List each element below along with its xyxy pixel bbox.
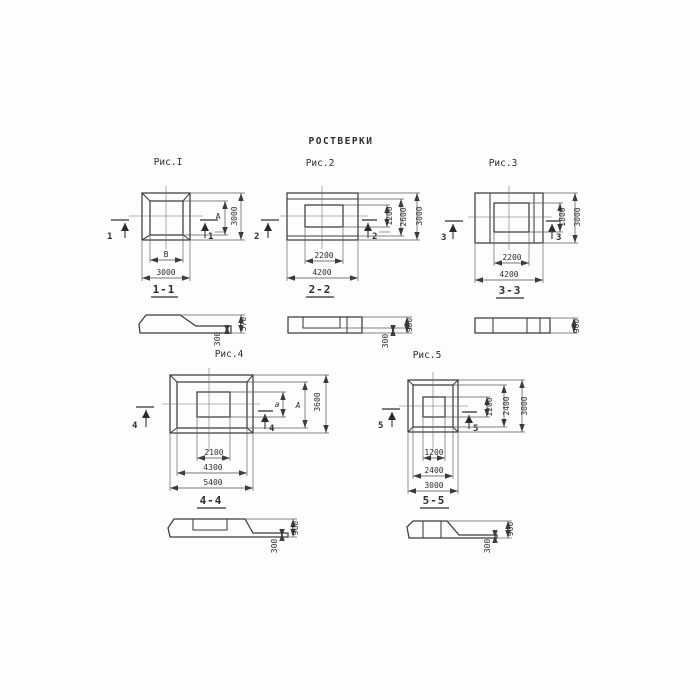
fig2-outline: [287, 193, 358, 240]
fig2-section-view: 900 300: [288, 317, 414, 348]
fig3-dim-bottom-inner: 2200: [502, 253, 521, 262]
fig3-dim-right-inner: 1800: [558, 207, 567, 226]
fig2-dim-right-inner: 1200: [385, 206, 394, 225]
fig5-cut-marker-left: 5: [378, 409, 400, 431]
fig3-section-label: 3-3: [499, 284, 522, 297]
fig3-section-view: 900: [475, 318, 581, 333]
fig1-plan: Рис.I 1 1 А: [107, 157, 245, 297]
fig1-dimensions: А 3000 В 3000: [142, 193, 245, 281]
fig4-cut-marker-left: 4: [132, 407, 154, 431]
drawing-sheet: РОСТВЕРКИ Рис.I 1 1: [0, 0, 700, 700]
fig4-plan: Рис.4 4 4 a: [132, 349, 329, 508]
fig4-dim-right-mid: А: [295, 401, 301, 410]
fig4-dim-bottom-mid: 4300: [203, 463, 222, 472]
fig1-section-view: 570 300: [139, 315, 248, 346]
fig3-dim-right-outer: 3000: [573, 207, 582, 226]
fig2-dim-right-mid: 2600: [399, 207, 408, 226]
fig2-section-tail: 300: [381, 334, 390, 349]
fig1-dim-bottom-outer: 3000: [156, 268, 175, 277]
fig2-section-height: 900: [405, 318, 414, 333]
fig3-cut-marker-left: 3: [441, 221, 463, 243]
fig1-dim-bottom-inner: В: [164, 250, 169, 259]
fig1-caption: Рис.I: [154, 157, 183, 168]
fig4-dim-right-inner: a: [275, 400, 280, 409]
fig4-caption: Рис.4: [215, 349, 244, 360]
fig3-cut-number: 3: [441, 233, 446, 243]
fig1-centerlines: [129, 186, 203, 249]
fig5-dim-right-outer: 3000: [520, 396, 529, 415]
fig5-section-label: 5-5: [423, 494, 446, 507]
fig4-dim-bottom-inner: 2100: [204, 448, 223, 457]
fig4-dim-bottom-outer: 5400: [203, 478, 222, 487]
fig1-cut-number: 1: [107, 232, 112, 242]
fig3-plan: Рис.3 3 3 1800 3000: [441, 158, 582, 298]
grillage-drawing: РОСТВЕРКИ Рис.I 1 1: [0, 0, 700, 700]
fig2-dim-right-outer: 3000: [415, 206, 424, 225]
fig4-cut-number: 4: [269, 424, 275, 434]
fig1-cut-marker-right: 1: [200, 220, 226, 242]
fig2-cut-number: 2: [372, 232, 377, 242]
fig2-plan: Рис.2 2 2 1200: [254, 158, 424, 297]
fig5-caption: Рис.5: [413, 350, 442, 361]
fig1-cut-marker-left: 1: [107, 220, 129, 242]
fig5-section-tail: 300: [483, 539, 492, 554]
fig1-dim-right-outer: 3000: [230, 206, 239, 225]
fig2-caption: Рис.2: [306, 158, 335, 169]
fig2-section-label: 2-2: [309, 283, 332, 296]
fig4-section-tail: 300: [270, 539, 279, 554]
fig1-section-tail: 300: [213, 332, 222, 347]
fig2-dim-bottom-inner: 2200: [314, 251, 333, 260]
fig4-section-height: 900: [291, 521, 300, 536]
fig4-dim-right-outer: 3600: [313, 392, 322, 411]
fig5-section-height: 900: [506, 522, 515, 537]
sheet-title: РОСТВЕРКИ: [309, 136, 374, 147]
fig5-cut-marker-right: 5: [462, 412, 478, 434]
fig5-cut-number: 5: [378, 421, 383, 431]
fig1-section-label: 1-1: [153, 283, 176, 296]
fig2-cut-number: 2: [254, 232, 259, 242]
fig5-dim-right-mid: 2400: [502, 396, 511, 415]
fig2-dim-bottom-outer: 4200: [312, 268, 331, 277]
fig1-cut-number: 1: [208, 232, 213, 242]
fig5-cut-number: 5: [473, 424, 478, 434]
fig3-dim-bottom-outer: 4200: [499, 270, 518, 279]
fig5-section-view: 900 300: [407, 521, 515, 553]
fig2-cut-marker-left: 2: [254, 220, 279, 242]
fig5-plan: Рис.5 5 5 1200: [378, 350, 529, 508]
fig5-dim-bottom-outer: 3000: [424, 481, 443, 490]
fig4-section-view: 900 300: [168, 519, 300, 553]
fig3-cut-number: 3: [556, 233, 561, 243]
fig1-section-height: 570: [239, 317, 248, 332]
fig4-cut-number: 4: [132, 421, 138, 431]
fig5-dim-bottom-mid: 2400: [424, 466, 443, 475]
fig3-centerlines: [468, 186, 552, 250]
fig4-section-label: 4-4: [200, 494, 223, 507]
fig4-cut-marker-right: 4: [258, 411, 275, 434]
fig1-dim-right-inner: А: [216, 212, 221, 221]
fig5-dim-right-inner: 1200: [485, 397, 494, 416]
fig3-section-height: 900: [572, 319, 581, 334]
fig3-caption: Рис.3: [489, 158, 518, 169]
fig5-dim-bottom-inner: 1200: [424, 448, 443, 457]
fig2-dimensions: 1200 2600 3000 2200 4200: [287, 193, 424, 281]
